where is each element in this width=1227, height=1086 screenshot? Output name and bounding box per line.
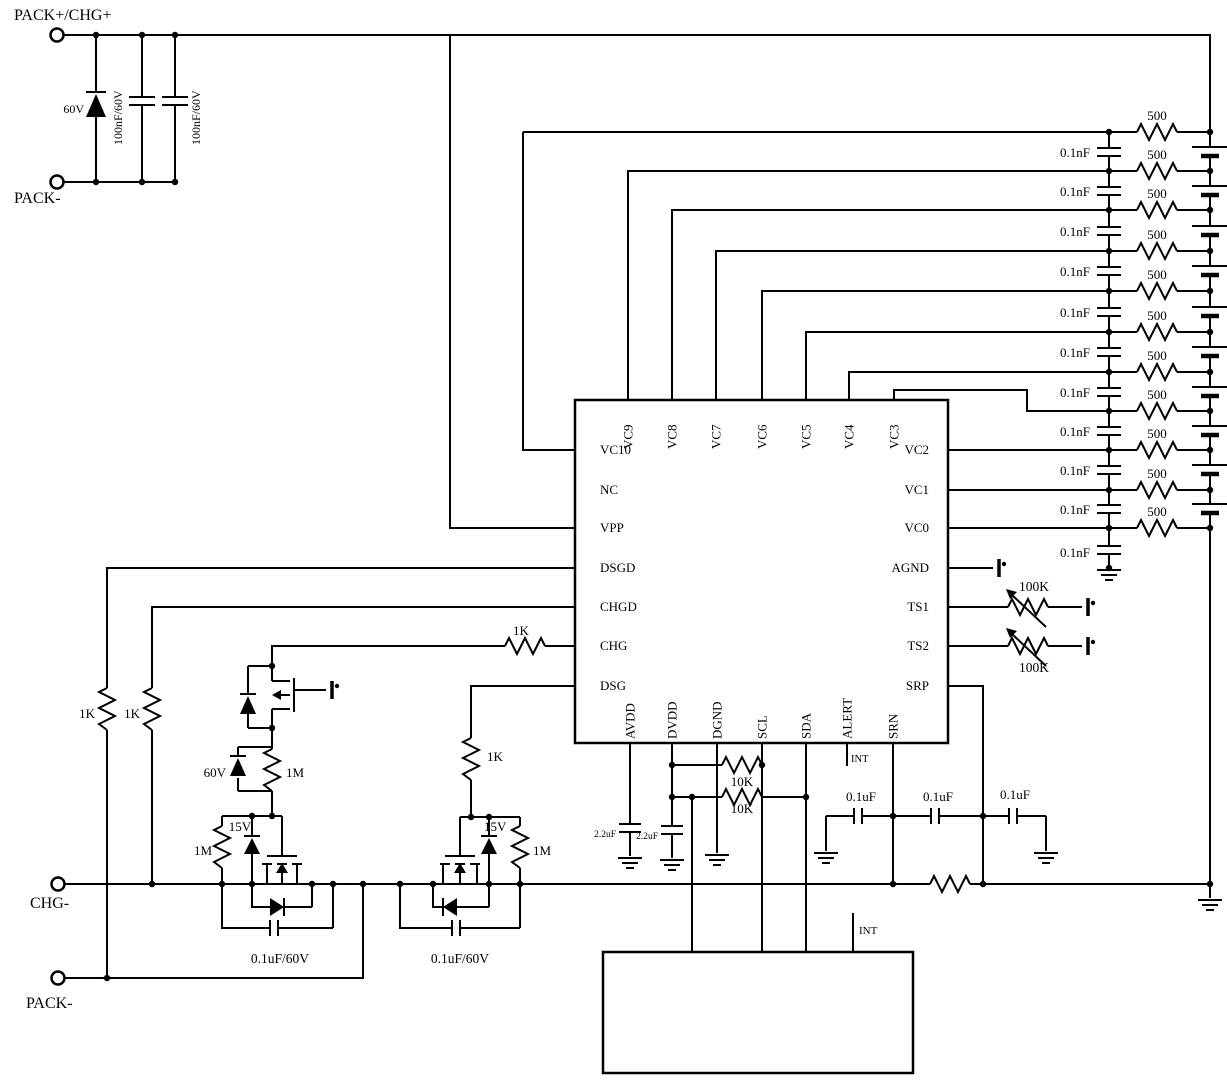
junction-dot [397, 881, 403, 887]
filter-cap [1097, 251, 1121, 291]
terminal-dot-icon [1091, 640, 1095, 644]
ic-pin-label-top: VC4 [842, 424, 857, 449]
right-fet-gate-node [440, 817, 520, 884]
pack-minus-top-label: PACK- [14, 190, 61, 207]
cell-tap-resistor [1137, 163, 1177, 179]
gate-fet-arrow-icon [272, 690, 281, 700]
chg-res-label: 1K [513, 623, 530, 638]
junction-dot [759, 762, 765, 768]
junction-dot [1106, 565, 1112, 571]
filter-cap [1097, 291, 1121, 332]
ic-pin-label-top: VC6 [755, 424, 770, 449]
cell-tap-resistor [1137, 324, 1177, 340]
junction-dot [172, 32, 178, 38]
vc6-route [762, 291, 1109, 400]
ic-pin-label-bottom: ALERT [840, 698, 855, 739]
right-fet-body-diode-icon [443, 898, 457, 916]
ic-pin-label-left: NC [600, 482, 618, 497]
ts2-thermistor-icon [1008, 638, 1048, 654]
sense-cap2-label: 0.1uF [923, 789, 953, 804]
junction-dot [1207, 248, 1213, 254]
junction-dot [890, 813, 896, 819]
ic-pin-label-right: AGND [891, 560, 929, 575]
cell-tap-resistor-label: 500 [1147, 387, 1167, 402]
junction-dot [249, 813, 255, 819]
ic-pin-label-right: VC1 [904, 482, 929, 497]
pullup-scl-label: 10K [731, 774, 754, 789]
vpp-route [450, 35, 575, 528]
cell-tap-resistor [1137, 364, 1177, 380]
left-fet-body-diode-icon [270, 898, 284, 916]
right-fet-zener-icon [481, 838, 497, 854]
left-fet-res-label: 1M [194, 843, 213, 858]
ic-pin-label-left: CHG [600, 638, 627, 653]
cell-tap-resistor-label: 500 [1147, 466, 1167, 481]
ic-pin-label-right: VC2 [904, 442, 929, 457]
terminal-circle [52, 878, 65, 891]
junction-dot [517, 881, 523, 887]
junction-dot [980, 813, 986, 819]
chg-minus-label: CHG- [30, 895, 69, 912]
ic-pin-label-right: VC0 [904, 520, 929, 535]
junction-dot [486, 881, 492, 887]
right-fet-body-diode-loop [433, 884, 489, 907]
dvdd-cap-label: 2.2uF [636, 832, 658, 842]
junction-dot [219, 881, 225, 887]
gate-fet-diode-branch [248, 666, 272, 728]
left-fet-body-diode-loop [252, 884, 312, 907]
terminal-dot-icon [335, 684, 339, 688]
junction-dot [1106, 487, 1112, 493]
cell-tap-resistor [1137, 124, 1177, 140]
terminal-circle [51, 176, 64, 189]
ic-pin-label-bottom: SDA [799, 712, 814, 739]
junction-dot [1207, 487, 1213, 493]
chgd-res-label: 1K [124, 706, 141, 721]
tvs-diode-icon [86, 94, 106, 117]
dsgd-route [107, 568, 575, 978]
chg-resistor [505, 638, 545, 654]
filter-cap-label: 0.1nF [1060, 545, 1090, 560]
input-cap1 [129, 35, 155, 182]
ground-symbol [660, 860, 684, 870]
ic-pin-label-left: VPP [600, 520, 624, 535]
junction-dot [269, 663, 275, 669]
clamp-resistor [264, 749, 280, 791]
junction-dot [1106, 447, 1112, 453]
ic-pin-label-bottom: SRN [886, 713, 901, 739]
ground-symbol [1097, 570, 1121, 580]
cell-tap-resistor-label: 500 [1147, 426, 1167, 441]
right-fet-gate-resistor [512, 826, 528, 868]
junction-dot [139, 32, 145, 38]
cell-tap-resistor [1137, 520, 1177, 536]
input-cap1-label: 100nF/60V [111, 90, 125, 145]
cell-tap-resistor [1137, 202, 1177, 218]
pullup-scl-resistor [722, 757, 762, 773]
junction-dot [309, 881, 315, 887]
cell-tap-resistor [1137, 442, 1177, 458]
filter-cap-label: 0.1nF [1060, 305, 1090, 320]
clamp-zener-icon [230, 758, 246, 776]
srp-route [948, 686, 983, 884]
alert-net-label: INT [851, 754, 869, 765]
filter-cap-label: 0.1nF [1060, 345, 1090, 360]
input-cap2 [162, 35, 188, 182]
ts1-thermistor-label: 100K [1019, 579, 1049, 594]
ic-pin-label-bottom: DVDD [665, 701, 680, 739]
junction-dot [1106, 248, 1112, 254]
terminal-dot-icon [1002, 562, 1006, 566]
junction-dot [269, 725, 275, 731]
clamp-zener-label: 60V [204, 765, 227, 780]
junction-dot [1207, 881, 1213, 887]
terminal-circle [52, 972, 65, 985]
ts2-thermistor-label: 100K [1019, 660, 1049, 675]
junction-dot [1106, 129, 1112, 135]
dsgd-resistor [99, 688, 115, 730]
ic-pin-label-right: TS1 [907, 599, 929, 614]
ic-pin-label-left: DSG [600, 678, 626, 693]
junction-dot [93, 32, 99, 38]
pack-minus-bottom-label: PACK- [26, 995, 73, 1012]
terminal-circle [51, 29, 64, 42]
ic-pin-label-left: DSGD [600, 560, 635, 575]
junction-dot [93, 179, 99, 185]
junction-dot [1106, 207, 1112, 213]
pack-minus-link [64, 884, 363, 978]
filter-cap [1097, 490, 1121, 528]
mcu-body [603, 952, 913, 1073]
cell-tap-resistor-label: 500 [1147, 504, 1167, 519]
cell-tap-resistor-label: 500 [1147, 186, 1167, 201]
sense-shunt-resistor [930, 876, 970, 892]
junction-dot [486, 814, 492, 820]
filter-cap [1097, 171, 1121, 210]
vc7-route [716, 251, 1109, 400]
cell-tap-resistor-label: 500 [1147, 267, 1167, 282]
schematic-canvas: PACK+/CHG+ PACK- CHG- PACK- 60V 100nF/60… [0, 0, 1227, 1086]
terminal-dot-icon [1091, 601, 1095, 605]
junction-dot [689, 794, 695, 800]
ic-pin-label-top: VC9 [621, 424, 636, 449]
chgd-route [152, 607, 575, 884]
sense-cap3-label: 0.1uF [1000, 787, 1030, 802]
dvdd-branch [661, 743, 683, 858]
filter-cap-label: 0.1nF [1060, 224, 1090, 239]
vc9-route [628, 171, 1109, 400]
filter-cap-label: 0.1nF [1060, 502, 1090, 517]
ic-pin-label-bottom: DGND [710, 701, 725, 739]
dsg-res-label: 1K [487, 749, 504, 764]
ground-symbol [618, 858, 642, 868]
filter-cap [1097, 372, 1121, 411]
junction-dot [1207, 408, 1213, 414]
junction-dot [1207, 329, 1213, 335]
right-fet-snubber-cap [400, 884, 520, 936]
cell-tap-resistor-label: 500 [1147, 348, 1167, 363]
cell-tap-resistor [1137, 482, 1177, 498]
ic-pin-label-left: CHGD [600, 599, 637, 614]
ic-pin-label-bottom: SCL [755, 715, 770, 739]
right-fet-zener-label: 15V [484, 819, 507, 834]
junction-dot [1207, 288, 1213, 294]
ts1-thermistor-icon [1008, 599, 1048, 615]
ground-symbol [814, 853, 838, 863]
junction-dot [1106, 329, 1112, 335]
junction-dot [269, 813, 275, 819]
filter-cap-label: 0.1nF [1060, 264, 1090, 279]
junction-dot [149, 881, 155, 887]
junction-dot [1106, 288, 1112, 294]
junction-dot [249, 881, 255, 887]
filter-cap-label: 0.1nF [1060, 184, 1090, 199]
junction-dot [330, 881, 336, 887]
ic-pin-label-top: VC7 [709, 424, 724, 449]
junction-dot [890, 881, 896, 887]
ic-pin-label-right: SRP [906, 678, 929, 693]
box-layer [51, 29, 949, 1074]
ic-pin-label-right: TS2 [907, 638, 929, 653]
cell-tap-resistor-label: 500 [1147, 147, 1167, 162]
cell-tap-resistor [1137, 283, 1177, 299]
junction-dot [803, 794, 809, 800]
left-fet-zener-icon [244, 838, 260, 854]
ic-pin-label-bottom: AVDD [623, 703, 638, 739]
left-fet-snubber-label: 0.1uF/60V [251, 951, 309, 966]
input-cap2-label: 100nF/60V [189, 90, 203, 145]
ic-pin-label-top: VC8 [665, 424, 680, 449]
filter-cap [1097, 411, 1121, 450]
filter-cap-label: 0.1nF [1060, 385, 1090, 400]
filter-cap [1097, 132, 1121, 171]
junction-dot [1207, 207, 1213, 213]
dsg-resistor [463, 738, 479, 780]
ground-symbol [1034, 853, 1058, 863]
filter-cap-label: 0.1nF [1060, 424, 1090, 439]
junction-dot [1106, 525, 1112, 531]
filter-cap-label: 0.1nF [1060, 145, 1090, 160]
junction-dot [1207, 168, 1213, 174]
ic-pin-label-top: VC3 [887, 424, 902, 449]
cell-tap-resistor-label: 500 [1147, 227, 1167, 242]
cell-tap-resistor-label: 500 [1147, 108, 1167, 123]
right-fet-res-label: 1M [533, 843, 552, 858]
right-fet-snubber-label: 0.1uF/60V [431, 951, 489, 966]
junction-dot [1207, 525, 1213, 531]
junction-dot [468, 814, 474, 820]
junction-dot [669, 762, 675, 768]
junction-dot [172, 179, 178, 185]
filter-cap [1097, 332, 1121, 372]
junction-dot [1207, 129, 1213, 135]
junction-dot [430, 881, 436, 887]
cell-tap-resistor [1137, 403, 1177, 419]
filter-cap-bottom [1097, 528, 1121, 568]
junction-dot [1207, 369, 1213, 375]
ic-pin-label-top: VC5 [799, 424, 814, 449]
vc10-route [523, 132, 575, 450]
ground-symbol [705, 855, 729, 865]
cell-tap-resistor [1137, 243, 1177, 259]
junction-dot [1106, 408, 1112, 414]
avdd-cap-label: 2.2uF [594, 830, 616, 840]
chgd-resistor [144, 688, 160, 730]
pack-plus-label: PACK+/CHG+ [14, 7, 111, 24]
filter-cap [1097, 450, 1121, 490]
filter-cap-label: 0.1nF [1060, 463, 1090, 478]
left-fet-zener-label: 15V [229, 819, 252, 834]
mcu-int-net-label: INT [859, 925, 878, 937]
left-fet-gate-resistor [214, 826, 230, 868]
ground-symbol [1198, 900, 1222, 910]
dsgd-res-label: 1K [79, 706, 96, 721]
pack-plus-rail [63, 35, 1210, 132]
sense-cap-row [826, 808, 1046, 851]
junction-dot [360, 881, 366, 887]
junction-dot [669, 794, 675, 800]
clamp-res-label: 1M [286, 765, 305, 780]
gate-fet-diode-icon [240, 696, 256, 714]
sense-cap1-label: 0.1uF [846, 789, 876, 804]
junction-dot [980, 881, 986, 887]
junction-dot [1106, 168, 1112, 174]
junction-dot [1207, 447, 1213, 453]
junction-dot [104, 975, 110, 981]
cell-tap-resistor-label: 500 [1147, 308, 1167, 323]
gate-fet-gate-lead [294, 678, 326, 712]
schematic-page: PACK+/CHG+ PACK- CHG- PACK- 60V 100nF/60… [0, 0, 1227, 1086]
filter-cap [1097, 210, 1121, 251]
junction-dot [1106, 369, 1112, 375]
tvs-label: 60V [63, 102, 84, 116]
junction-dot [139, 179, 145, 185]
